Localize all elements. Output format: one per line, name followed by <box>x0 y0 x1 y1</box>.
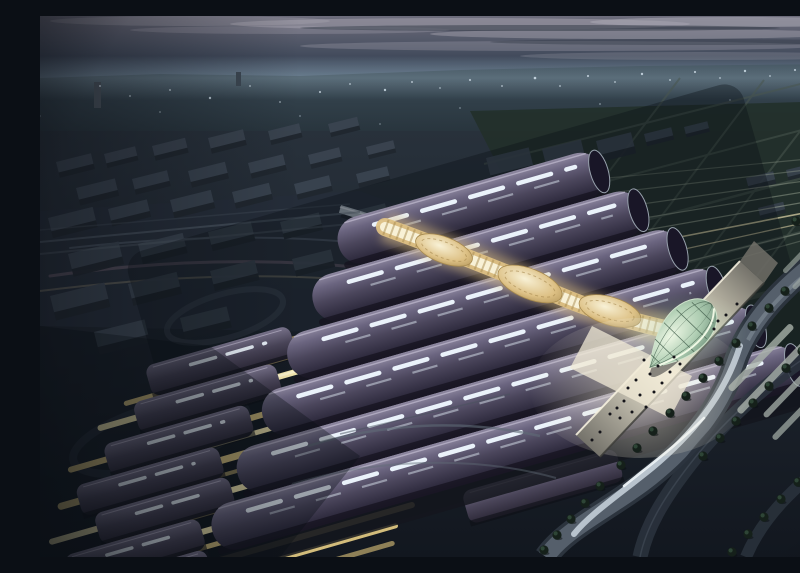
architectural-rendering: Aerial dusk rendering of a high-speed ra… <box>40 16 800 557</box>
